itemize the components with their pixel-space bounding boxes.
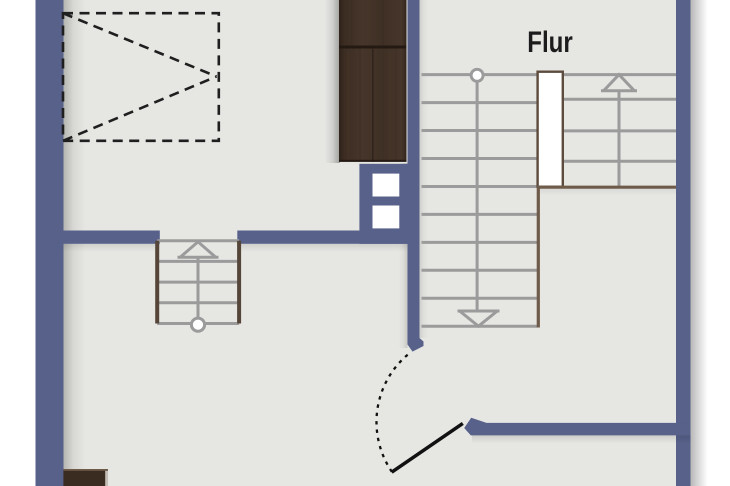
svg-text:Flur: Flur: [527, 26, 573, 59]
